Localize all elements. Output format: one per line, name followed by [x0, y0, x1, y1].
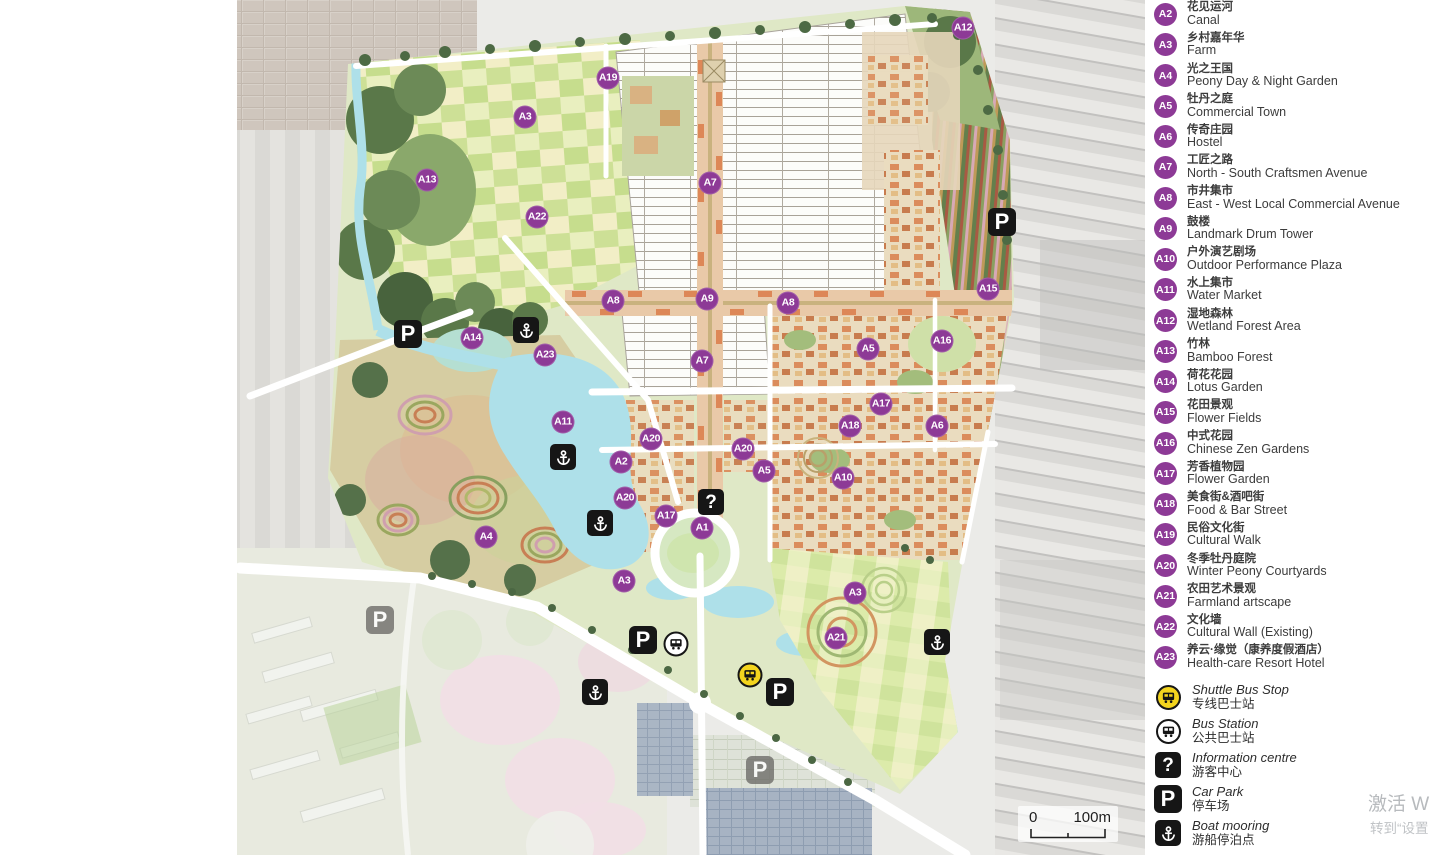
legend-facility-text: Information centre 游客中心: [1192, 750, 1297, 780]
marker-label: A8: [782, 298, 795, 309]
legend-item-A11: A11 水上集市 Water Market: [1140, 275, 1432, 306]
legend-item-text: 中式花园 Chinese Zen Gardens: [1187, 430, 1309, 456]
legend-facility-english: Information centre: [1192, 750, 1297, 765]
legend-facility-english: Bus Station: [1192, 716, 1259, 731]
map-marker-A23: A23: [534, 344, 557, 367]
legend-marker-badge: A13: [1154, 340, 1177, 363]
legend-item-chinese: 市井集市: [1187, 185, 1400, 198]
anchor-icon: [518, 322, 535, 339]
map-icon-bus-station: P ?: [664, 632, 689, 657]
car-park-icon-letter: P: [995, 211, 1010, 233]
marker-label: A1: [696, 523, 709, 534]
legend-marker-badge: A2: [1154, 3, 1177, 26]
anchor-icon: [555, 449, 572, 466]
legend-item-english: East - West Local Commercial Avenue: [1187, 198, 1400, 212]
marker-label: A13: [418, 175, 436, 186]
legend-item-A10: A10 户外演艺剧场 Outdoor Performance Plaza: [1140, 244, 1432, 275]
legend-item-A16: A16 中式花园 Chinese Zen Gardens: [1140, 428, 1432, 459]
legend-item-text: 传奇庄园 Hostel: [1187, 124, 1233, 150]
map-marker-A3: A3: [613, 570, 636, 593]
legend-marker-badge: A11: [1154, 278, 1177, 301]
legend-item-chinese: 竹林: [1187, 338, 1272, 351]
legend-item-A14: A14 荷花花园 Lotus Garden: [1140, 367, 1432, 398]
legend-facility-text: Car Park 停车场: [1192, 784, 1243, 814]
legend-item-english: Flower Fields: [1187, 412, 1261, 426]
legend-item-A17: A17 芳香植物园 Flower Garden: [1140, 458, 1432, 489]
map-marker-A14: A14: [461, 327, 484, 350]
marker-label: A10: [834, 473, 852, 484]
anchor-icon: [1160, 825, 1177, 842]
marker-label: A3: [849, 588, 862, 599]
legend-facility-chinese: 游船停泊点: [1192, 833, 1269, 848]
legend-facility-icon-box: P ?: [1154, 785, 1182, 813]
marker-label: A23: [536, 350, 554, 361]
legend-facility-text: Bus Station 公共巴士站: [1192, 716, 1259, 746]
marker-label: A9: [701, 294, 714, 305]
legend-marker-badge: A22: [1154, 615, 1177, 638]
legend-facility-chinese: 游客中心: [1192, 765, 1297, 780]
legend-item-chinese: 户外演艺剧场: [1187, 246, 1342, 259]
legend-marker-badge: A9: [1154, 217, 1177, 240]
map-icon-boat-mooring: P ?: [513, 317, 539, 343]
bus-icon: [1161, 724, 1176, 739]
legend-item-text: 市井集市 East - West Local Commercial Avenue: [1187, 185, 1400, 211]
map-marker-A8: A8: [777, 292, 800, 315]
legend-item-A2: A2 花见运河 Canal: [1140, 0, 1432, 30]
marker-label: A2: [615, 457, 628, 468]
map-marker-A3: A3: [514, 106, 537, 129]
map-marker-A7: A7: [699, 172, 722, 195]
marker-label: A19: [599, 73, 617, 84]
marker-label: A4: [480, 532, 493, 543]
legend-item-text: 光之王国 Peony Day & Night Garden: [1187, 63, 1338, 89]
legend-item-english: Commercial Town: [1187, 106, 1286, 120]
legend-marker-badge: A3: [1154, 33, 1177, 56]
legend-item-chinese: 农田艺术景观: [1187, 583, 1291, 596]
map-marker-A17: A17: [870, 393, 893, 416]
legend-item-text: 荷花花园 Lotus Garden: [1187, 369, 1263, 395]
legend-item-text: 水上集市 Water Market: [1187, 277, 1262, 303]
legend-facility-english: Car Park: [1192, 784, 1243, 799]
map-marker-A15: A15: [977, 278, 1000, 301]
map-marker-A1: A1: [691, 517, 714, 540]
legend-item-english: Bamboo Forest: [1187, 351, 1272, 365]
legend-item-A21: A21 农田艺术景观 Farmland artscape: [1140, 581, 1432, 612]
legend-item-english: Landmark Drum Tower: [1187, 228, 1313, 242]
marker-label: A5: [758, 466, 771, 477]
legend-item-english: Cultural Walk: [1187, 534, 1261, 548]
legend-item-text: 乡村嘉年华 Farm: [1187, 32, 1245, 58]
legend-facility-icon-box: P ?: [1154, 820, 1182, 846]
map-marker-A22: A22: [526, 206, 549, 229]
map-marker-A5: A5: [753, 460, 776, 483]
legend-item-text: 湿地森林 Wetland Forest Area: [1187, 308, 1301, 334]
legend-icon: P ?: [1156, 685, 1181, 710]
map-marker-A18: A18: [839, 415, 862, 438]
marker-label: A20: [642, 434, 660, 445]
map-icon-car-park: P ?: [988, 208, 1016, 236]
marker-label: A12: [954, 23, 972, 34]
map-marker-A17: A17: [655, 505, 678, 528]
legend-marker-badge: A20: [1154, 554, 1177, 577]
legend-marker-badge: A16: [1154, 432, 1177, 455]
anchor-icon: [592, 515, 609, 532]
legend-item-english: Winter Peony Courtyards: [1187, 565, 1327, 579]
map-marker-A16: A16: [931, 330, 954, 353]
anchor-icon: [587, 684, 604, 701]
map-marker-A20: A20: [640, 428, 663, 451]
car-park-icon-letter: P: [753, 759, 768, 781]
legend-marker-badge: A23: [1154, 646, 1177, 669]
legend-facility-text: Shuttle Bus Stop 专线巴士站: [1192, 682, 1289, 712]
legend-item-english: Cultural Wall (Existing): [1187, 626, 1313, 640]
legend-item-chinese: 花见运河: [1187, 1, 1233, 14]
legend-item-english: Hostel: [1187, 136, 1233, 150]
legend-marker-badge: A14: [1154, 370, 1177, 393]
windows-activation-watermark-line2: 转到“设置: [1370, 817, 1429, 837]
legend-item-english: Farmland artscape: [1187, 596, 1291, 610]
marker-label: A7: [696, 356, 709, 367]
legend-item-A9: A9 鼓楼 Landmark Drum Tower: [1140, 213, 1432, 244]
legend-item-A12: A12 湿地森林 Wetland Forest Area: [1140, 305, 1432, 336]
legend-icon: P ?: [1155, 820, 1181, 846]
legend-item-english: Health-care Resort Hotel: [1187, 657, 1329, 671]
legend-facility-item-shuttle-bus: P ?: [1140, 680, 1432, 714]
legend-item-text: 美食街&酒吧街 Food & Bar Street: [1187, 491, 1287, 517]
map-icon-car-park: P ?: [394, 320, 422, 348]
legend-item-A19: A19 民俗文化街 Cultural Walk: [1140, 520, 1432, 551]
marker-label: A5: [862, 344, 875, 355]
legend-facility-icon-box: P ?: [1154, 719, 1182, 744]
bus-icon: [669, 637, 684, 652]
legend-icon: P ?: [1155, 752, 1181, 778]
legend-item-chinese: 牡丹之庭: [1187, 93, 1286, 106]
marker-label: A20: [734, 444, 752, 455]
legend-item-text: 工匠之路 North - South Craftsmen Avenue: [1187, 154, 1367, 180]
map-marker-A6: A6: [926, 415, 949, 438]
legend-marker-badge: A8: [1154, 187, 1177, 210]
legend-item-text: 花田景观 Flower Fields: [1187, 399, 1261, 425]
legend-item-A5: A5 牡丹之庭 Commercial Town: [1140, 91, 1432, 122]
marker-label: A17: [657, 511, 675, 522]
legend-areas: A2 花见运河 Canal A3 乡村嘉年华 Farm A4 光之王国 Peon…: [1140, 0, 1432, 673]
map-icon-boat-mooring: P ?: [582, 679, 608, 705]
legend-item-english: Outdoor Performance Plaza: [1187, 259, 1342, 273]
legend-item-english: Flower Garden: [1187, 473, 1270, 487]
legend-icon: P ?: [1154, 785, 1182, 813]
car-park-icon-letter: P: [636, 629, 651, 651]
legend-item-chinese: 美食街&酒吧街: [1187, 491, 1287, 504]
legend-item-english: Wetland Forest Area: [1187, 320, 1301, 334]
scale-bar: 0 100m: [1018, 806, 1118, 842]
legend-item-text: 养云·缘觉（康养度假酒店） Health-care Resort Hotel: [1187, 644, 1329, 670]
legend-item-A8: A8 市井集市 East - West Local Commercial Ave…: [1140, 183, 1432, 214]
marker-label: A11: [554, 417, 572, 428]
legend-marker-badge: A10: [1154, 248, 1177, 271]
car-park-icon-letter: P: [401, 323, 416, 345]
legend-facility-icon-box: P ?: [1154, 752, 1182, 778]
map-marker-A8: A8: [602, 290, 625, 313]
map-marker-A4: A4: [475, 526, 498, 549]
bus-icon: [743, 668, 758, 683]
map-marker-A10: A10: [832, 467, 855, 490]
bus-icon: [1161, 690, 1176, 705]
marker-label: A14: [463, 333, 481, 344]
marker-label: A3: [519, 112, 532, 123]
legend-item-A4: A4 光之王国 Peony Day & Night Garden: [1140, 60, 1432, 91]
map-icon-car-park: P ?: [629, 626, 657, 654]
legend-item-A7: A7 工匠之路 North - South Craftsmen Avenue: [1140, 152, 1432, 183]
marker-label: A21: [827, 633, 845, 644]
scale-distance-label: 100m: [1073, 809, 1111, 826]
legend-item-english: Lotus Garden: [1187, 381, 1263, 395]
map-marker-A3: A3: [844, 582, 867, 605]
legend-item-A15: A15 花田景观 Flower Fields: [1140, 397, 1432, 428]
car-park-icon-letter: P: [773, 681, 788, 703]
marker-label: A22: [528, 212, 546, 223]
legend-item-text: 冬季牡丹庭院 Winter Peony Courtyards: [1187, 553, 1327, 579]
map-icon-boat-mooring: P ?: [587, 510, 613, 536]
legend-marker-badge: A21: [1154, 585, 1177, 608]
map-icon-car-park: P ?: [366, 606, 394, 634]
legend-facility-item-information: P ?: [1140, 748, 1432, 782]
legend-marker-badge: A5: [1154, 95, 1177, 118]
marker-label: A20: [616, 493, 634, 504]
legend-marker-badge: A12: [1154, 309, 1177, 332]
legend-item-text: 花见运河 Canal: [1187, 1, 1233, 27]
map-marker-A20: A20: [732, 438, 755, 461]
legend-item-english: Canal: [1187, 14, 1233, 28]
information-icon-mark: ?: [705, 493, 717, 512]
legend-item-A3: A3 乡村嘉年华 Farm: [1140, 30, 1432, 61]
map-marker-A21: A21: [825, 627, 848, 650]
legend-marker-badge: A15: [1154, 401, 1177, 424]
map-icon-boat-mooring: P ?: [924, 629, 950, 655]
map-icon-car-park: P ?: [746, 756, 774, 784]
windows-activation-watermark-line1: 激活 W: [1368, 789, 1429, 816]
legend-facility-english: Shuttle Bus Stop: [1192, 682, 1289, 697]
legend-marker-badge: A17: [1154, 462, 1177, 485]
legend-item-text: 鼓楼 Landmark Drum Tower: [1187, 216, 1313, 242]
legend-item-text: 竹林 Bamboo Forest: [1187, 338, 1272, 364]
legend-item-english: Peony Day & Night Garden: [1187, 75, 1338, 89]
legend-item-A13: A13 竹林 Bamboo Forest: [1140, 336, 1432, 367]
legend-item-chinese: 中式花园: [1187, 430, 1309, 443]
map-icon-boat-mooring: P ?: [550, 444, 576, 470]
legend-facility-text: Boat mooring 游船停泊点: [1192, 818, 1269, 848]
legend-facility-chinese: 专线巴士站: [1192, 697, 1289, 712]
car-park-icon-letter: P: [373, 609, 388, 631]
legend-item-text: 文化墙 Cultural Wall (Existing): [1187, 614, 1313, 640]
legend-item-A18: A18 美食街&酒吧街 Food & Bar Street: [1140, 489, 1432, 520]
marker-label: A8: [607, 296, 620, 307]
map-marker-A7: A7: [691, 350, 714, 373]
marker-label: A18: [841, 421, 859, 432]
legend-item-text: 农田艺术景观 Farmland artscape: [1187, 583, 1291, 609]
legend-item-english: Food & Bar Street: [1187, 504, 1287, 518]
marker-label: A17: [872, 399, 890, 410]
map-marker-A5: A5: [857, 338, 880, 361]
legend-marker-badge: A6: [1154, 125, 1177, 148]
legend-item-A22: A22 文化墙 Cultural Wall (Existing): [1140, 612, 1432, 643]
legend-marker-badge: A18: [1154, 493, 1177, 516]
map-marker-A19: A19: [597, 67, 620, 90]
legend-item-A6: A6 传奇庄园 Hostel: [1140, 122, 1432, 153]
map-marker-A12: A12: [952, 17, 975, 40]
car-park-icon-letter: P: [1161, 788, 1176, 810]
legend-item-english: North - South Craftsmen Avenue: [1187, 167, 1367, 181]
legend-marker-badge: A4: [1154, 64, 1177, 87]
marker-label: A6: [931, 421, 944, 432]
marker-label: A3: [618, 576, 631, 587]
map-icon-information: P ?: [698, 489, 724, 515]
legend-facility-item-bus-station: P ?: [1140, 714, 1432, 748]
map-icon-car-park: P ?: [766, 678, 794, 706]
legend-item-english: Chinese Zen Gardens: [1187, 443, 1309, 457]
marker-label: A7: [704, 178, 717, 189]
legend-facility-chinese: 停车场: [1192, 799, 1243, 814]
legend-item-english: Farm: [1187, 44, 1245, 58]
legend-item-text: 芳香植物园 Flower Garden: [1187, 461, 1270, 487]
legend-item-english: Water Market: [1187, 289, 1262, 303]
masterplan-page: A12 A19 A3 A13 A7 A22 A15: [0, 0, 1432, 855]
legend-icon: P ?: [1156, 719, 1181, 744]
map-marker-A20: A20: [614, 487, 637, 510]
map-marker-A9: A9: [696, 288, 719, 311]
legend-item-text: 户外演艺剧场 Outdoor Performance Plaza: [1187, 246, 1342, 272]
legend-item-A23: A23 养云·缘觉（康养度假酒店） Health-care Resort Hot…: [1140, 642, 1432, 673]
map-marker-A11: A11: [552, 411, 575, 434]
legend-facility-english: Boat mooring: [1192, 818, 1269, 833]
legend-item-A20: A20 冬季牡丹庭院 Winter Peony Courtyards: [1140, 550, 1432, 581]
legend-facility-chinese: 公共巴士站: [1192, 731, 1259, 746]
legend-item-text: 民俗文化街 Cultural Walk: [1187, 522, 1261, 548]
anchor-icon: [929, 634, 946, 651]
marker-label: A15: [979, 284, 997, 295]
legend-marker-badge: A19: [1154, 523, 1177, 546]
map-icon-shuttle-bus: P ?: [738, 663, 763, 688]
map-marker-A2: A2: [610, 451, 633, 474]
legend-facility-icon-box: P ?: [1154, 685, 1182, 710]
map-marker-A13: A13: [416, 169, 439, 192]
legend-item-text: 牡丹之庭 Commercial Town: [1187, 93, 1286, 119]
scale-bar-rule: [1030, 828, 1108, 839]
information-icon-mark: ?: [1162, 756, 1174, 775]
legend-marker-badge: A7: [1154, 156, 1177, 179]
marker-label: A16: [933, 336, 951, 347]
scale-zero-label: 0: [1029, 809, 1037, 826]
